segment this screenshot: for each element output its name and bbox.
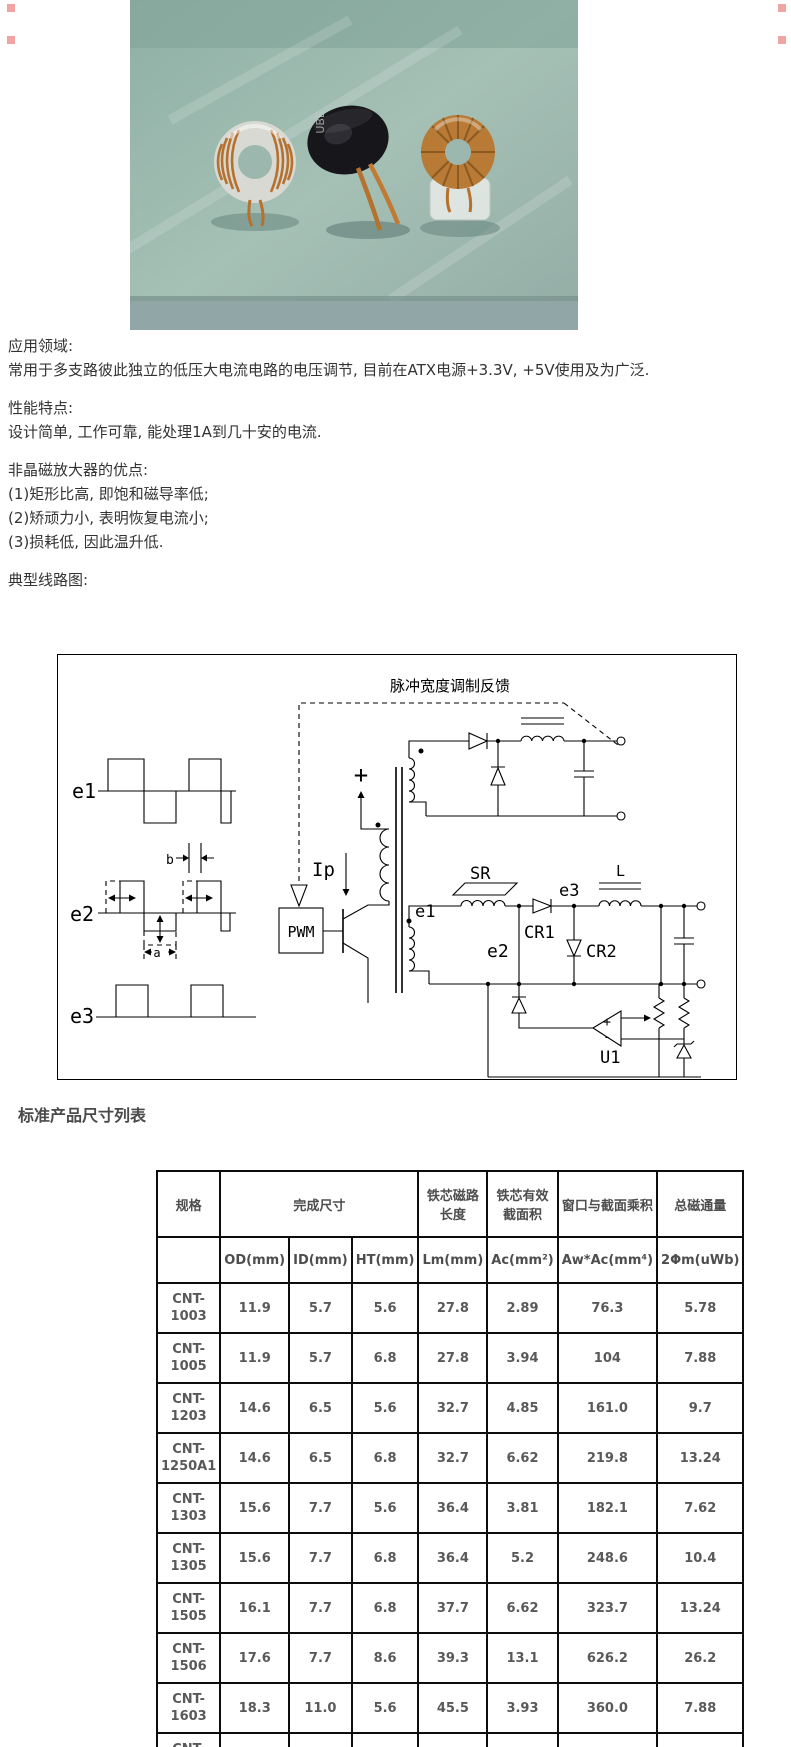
- value-cell: 5.6: [352, 1283, 419, 1333]
- value-cell: 11.9: [220, 1283, 289, 1333]
- spec-name-cell: CNT- 1505: [157, 1583, 220, 1633]
- value-cell: 36.4: [418, 1533, 487, 1583]
- value-cell: 27.8: [418, 1333, 487, 1383]
- corner-mark-icon: [778, 4, 786, 12]
- table-row: CNT- 150516.17.76.837.76.62323.713.24: [157, 1583, 743, 1633]
- winding-e1-label: e1: [415, 902, 435, 922]
- header-core-area: 铁芯有效截面积: [487, 1171, 557, 1237]
- cr1-label: CR1: [524, 923, 555, 943]
- value-cell: 7.7: [289, 1483, 352, 1533]
- value-cell: 48.0: [418, 1733, 487, 1747]
- value-cell: 3.94: [487, 1333, 557, 1383]
- value-cell: 6.5: [289, 1433, 352, 1483]
- value-cell: 17.6: [220, 1633, 289, 1683]
- sleeve-text: UBE: [314, 111, 327, 134]
- page: UBE: [0, 0, 791, 1747]
- table-row: CNT- 180520.610.16.948.09.77829.519.5: [157, 1733, 743, 1747]
- value-cell: 13.24: [657, 1433, 743, 1483]
- table-row: CNT- 1250A114.66.56.832.76.62219.813.24: [157, 1433, 743, 1483]
- value-cell: 45.5: [418, 1683, 487, 1733]
- value-cell: 248.6: [558, 1533, 657, 1583]
- diode-icon: [469, 733, 487, 749]
- value-cell: 7.7: [289, 1583, 352, 1633]
- table-section-heading: 标准产品尺寸列表: [18, 1102, 146, 1126]
- advantage-item: (1)矩形比高, 即饱和磁导率低;: [8, 482, 786, 506]
- value-cell: 18.3: [220, 1683, 289, 1733]
- section-title-circuit: 典型线路图:: [8, 568, 786, 592]
- inductor-l-label: L: [616, 862, 625, 880]
- header-row-groups: 规格 完成尺寸 铁芯磁路长度 铁芯有效截面积 窗口与截面乘积 总磁通量: [157, 1171, 743, 1237]
- output-terminal: [697, 902, 705, 910]
- header-od: OD(mm): [220, 1237, 289, 1283]
- value-cell: 104: [558, 1333, 657, 1383]
- resistor: [654, 984, 664, 1077]
- spec-name-cell: CNT- 1250A1: [157, 1433, 220, 1483]
- header-spec: 规格: [157, 1171, 220, 1237]
- supply-plus-label: +: [354, 761, 368, 789]
- winding-dot: [376, 823, 381, 828]
- sr-label: SR: [470, 864, 491, 884]
- dimension-a-label: a: [153, 946, 160, 960]
- value-cell: 3.93: [487, 1683, 557, 1733]
- spec-name-cell: CNT- 1506: [157, 1633, 220, 1683]
- cr2-label: CR2: [586, 942, 617, 962]
- table-row: CNT- 160318.311.05.645.53.93360.07.88: [157, 1683, 743, 1733]
- value-cell: 182.1: [558, 1483, 657, 1533]
- value-cell: 9.77: [487, 1733, 557, 1747]
- value-cell: 15.6: [220, 1483, 289, 1533]
- opamp-plus-label: +: [603, 1015, 611, 1030]
- value-cell: 6.8: [352, 1333, 419, 1383]
- value-cell: 20.6: [220, 1733, 289, 1747]
- value-cell: 5.7: [289, 1333, 352, 1383]
- diode-icon: [512, 998, 526, 1013]
- value-cell: 8.6: [352, 1633, 419, 1683]
- corner-mark-icon: [7, 36, 15, 44]
- value-cell: 5.6: [352, 1383, 419, 1433]
- output-terminal: [617, 812, 625, 820]
- header-row-units: OD(mm) ID(mm) HT(mm) Lm(mm) Ac(mm²) Aw*A…: [157, 1237, 743, 1283]
- value-cell: 5.6: [352, 1683, 419, 1733]
- value-cell: 26.2: [657, 1633, 743, 1683]
- value-cell: 6.8: [352, 1433, 419, 1483]
- value-cell: 76.3: [558, 1283, 657, 1333]
- product-photo: UBE: [130, 0, 578, 330]
- header-finished-size: 完成尺寸: [220, 1171, 418, 1237]
- value-cell: 3.81: [487, 1483, 557, 1533]
- value-cell: 323.7: [558, 1583, 657, 1633]
- value-cell: 14.6: [220, 1433, 289, 1483]
- spec-name-cell: CNT- 1203: [157, 1383, 220, 1433]
- value-cell: 37.7: [418, 1583, 487, 1633]
- spec-table-body: CNT- 100311.95.75.627.82.8976.35.78CNT- …: [157, 1283, 743, 1747]
- u1-label: U1: [600, 1048, 620, 1068]
- value-cell: 5.2: [487, 1533, 557, 1583]
- spec-name-cell: CNT- 1303: [157, 1483, 220, 1533]
- header-lm: Lm(mm): [418, 1237, 487, 1283]
- table-row: CNT- 100511.95.76.827.83.941047.88: [157, 1333, 743, 1383]
- header-path-length: 铁芯磁路长度: [418, 1171, 487, 1237]
- value-cell: 4.85: [487, 1383, 557, 1433]
- spec-name-cell: CNT- 1003: [157, 1283, 220, 1333]
- value-cell: 19.5: [657, 1733, 743, 1747]
- node-e3-label: e3: [559, 881, 579, 901]
- transformer-core: [396, 767, 402, 993]
- output-terminal: [697, 980, 705, 988]
- saturable-reactor: [453, 883, 517, 895]
- diode-icon: [491, 768, 505, 785]
- waveform-e3-label: e3: [70, 1004, 94, 1028]
- header-id: ID(mm): [289, 1237, 352, 1283]
- diode-icon: [533, 899, 551, 913]
- section-title-features: 性能特点:: [8, 396, 786, 420]
- value-cell: 6.62: [487, 1583, 557, 1633]
- advantage-item: (3)损耗低, 因此温升低.: [8, 530, 786, 554]
- feedback-arrow-icon: [291, 885, 307, 906]
- waveform-e2-label: e2: [70, 902, 94, 926]
- value-cell: 9.7: [657, 1383, 743, 1433]
- spec-name-cell: CNT- 1603: [157, 1683, 220, 1733]
- ip-label: Ip: [312, 859, 335, 881]
- value-cell: 7.7: [289, 1533, 352, 1583]
- value-cell: 5.7: [289, 1283, 352, 1333]
- value-cell: 13.1: [487, 1633, 557, 1683]
- spec-name-cell: CNT- 1305: [157, 1533, 220, 1583]
- spec-table-section: 规格 完成尺寸 铁芯磁路长度 铁芯有效截面积 窗口与截面乘积 总磁通量 OD(m…: [156, 1170, 744, 1747]
- table-row: CNT- 130315.67.75.636.43.81182.17.62: [157, 1483, 743, 1533]
- value-cell: 32.7: [418, 1383, 487, 1433]
- value-cell: 7.88: [657, 1333, 743, 1383]
- value-cell: 39.3: [418, 1633, 487, 1683]
- value-cell: 6.9: [352, 1733, 419, 1747]
- section-title-applications: 应用领域:: [8, 334, 786, 358]
- value-cell: 32.7: [418, 1433, 487, 1483]
- header-window-product: 窗口与截面乘积: [558, 1171, 657, 1237]
- table-row: CNT- 150617.67.78.639.313.1626.226.2: [157, 1633, 743, 1683]
- value-cell: 2.89: [487, 1283, 557, 1333]
- value-cell: 7.62: [657, 1483, 743, 1533]
- spec-name-cell: CNT- 1805: [157, 1733, 220, 1747]
- intro-text: 应用领域: 常用于多支路彼此独立的低压大电流电路的电压调节, 目前在ATX电源+…: [8, 334, 786, 592]
- spec-name-cell: CNT- 1005: [157, 1333, 220, 1383]
- table-row: CNT- 100311.95.75.627.82.8976.35.78: [157, 1283, 743, 1333]
- node-e2-label: e2: [487, 941, 509, 962]
- value-cell: 7.88: [657, 1683, 743, 1733]
- value-cell: 10.1: [289, 1733, 352, 1747]
- waveform-e1-label: e1: [72, 779, 96, 803]
- value-cell: 5.78: [657, 1283, 743, 1333]
- value-cell: 6.8: [352, 1533, 419, 1583]
- pwm-label: PWM: [287, 923, 314, 941]
- value-cell: 10.4: [657, 1533, 743, 1583]
- value-cell: 161.0: [558, 1383, 657, 1433]
- applications-body: 常用于多支路彼此独立的低压大电流电路的电压调节, 目前在ATX电源+3.3V, …: [8, 358, 786, 382]
- corner-mark-icon: [778, 36, 786, 44]
- value-cell: 11.0: [289, 1683, 352, 1733]
- table-row: CNT- 130515.67.76.836.45.2248.610.4: [157, 1533, 743, 1583]
- value-cell: 6.62: [487, 1433, 557, 1483]
- value-cell: 13.24: [657, 1583, 743, 1633]
- header-flux: 2Φm(uWb): [657, 1237, 743, 1283]
- header-empty: [157, 1237, 220, 1283]
- section-title-advantages: 非晶磁放大器的优点:: [8, 458, 786, 482]
- zener-diode: [677, 1045, 691, 1058]
- value-cell: 36.4: [418, 1483, 487, 1533]
- diode-icon: [567, 940, 581, 956]
- opamp-minus-label: -: [603, 1030, 611, 1045]
- value-cell: 360.0: [558, 1683, 657, 1733]
- spec-table: 规格 完成尺寸 铁芯磁路长度 铁芯有效截面积 窗口与截面乘积 总磁通量 OD(m…: [156, 1170, 744, 1747]
- feedback-label: 脉冲宽度调制反馈: [390, 677, 510, 695]
- dimension-b-label: b: [166, 853, 174, 868]
- header-awac: Aw*Ac(mm⁴): [558, 1237, 657, 1283]
- corner-mark-icon: [7, 4, 15, 12]
- advantage-item: (2)矫顽力小, 表明恢复电流小;: [8, 506, 786, 530]
- value-cell: 14.6: [220, 1383, 289, 1433]
- circuit-diagram: e1 e2 b a e3: [57, 654, 737, 1080]
- resistor: [679, 984, 689, 1039]
- header-total-flux: 总磁通量: [657, 1171, 743, 1237]
- value-cell: 6.5: [289, 1383, 352, 1433]
- value-cell: 219.8: [558, 1433, 657, 1483]
- header-ht: HT(mm): [352, 1237, 419, 1283]
- value-cell: 5.6: [352, 1483, 419, 1533]
- value-cell: 829.5: [558, 1733, 657, 1747]
- header-ac: Ac(mm²): [487, 1237, 557, 1283]
- value-cell: 27.8: [418, 1283, 487, 1333]
- value-cell: 7.7: [289, 1633, 352, 1683]
- value-cell: 11.9: [220, 1333, 289, 1383]
- value-cell: 626.2: [558, 1633, 657, 1683]
- value-cell: 15.6: [220, 1533, 289, 1583]
- table-row: CNT- 120314.66.55.632.74.85161.09.7: [157, 1383, 743, 1433]
- output-terminal: [617, 737, 625, 745]
- value-cell: 16.1: [220, 1583, 289, 1633]
- value-cell: 6.8: [352, 1583, 419, 1633]
- features-body: 设计简单, 工作可靠, 能处理1A到几十安的电流.: [8, 420, 786, 444]
